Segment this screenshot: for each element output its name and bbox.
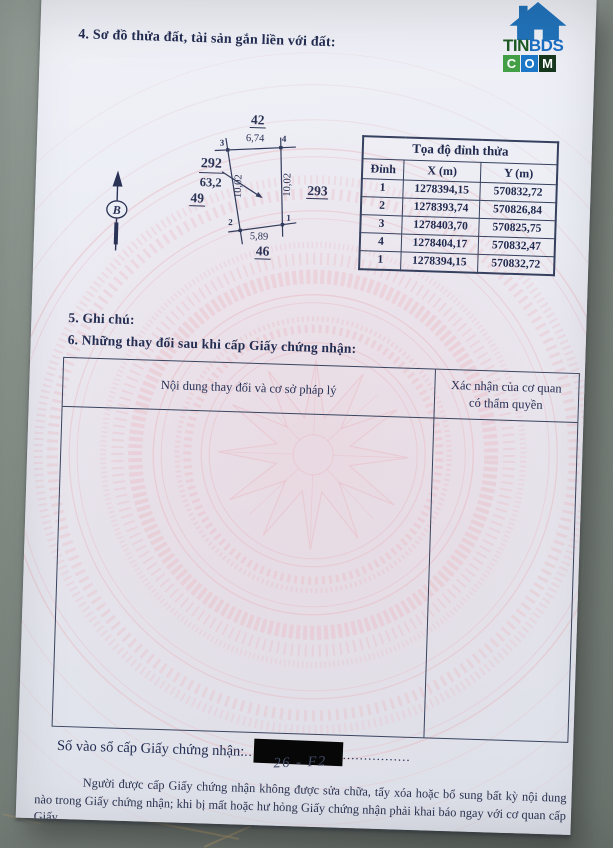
coord-cell: 570832,47 — [478, 236, 555, 256]
issue-number-label: Số vào sổ cấp Giấy chứng nhận: — [57, 738, 245, 760]
adjacent-plot-bottom: 46 — [255, 244, 271, 260]
coord-cell: 570826,84 — [479, 200, 556, 220]
changes-col2-header: Xác nhận của cơ quan có thẩm quyền — [433, 377, 578, 415]
north-arrow: B — [103, 170, 130, 257]
coord-cell: 1278393,74 — [402, 197, 480, 217]
plot-area: 63,2 — [200, 175, 222, 190]
coord-cell: 3 — [360, 214, 402, 233]
coord-col-header: Đỉnh — [362, 158, 404, 179]
adjacent-plot-top: 42 — [250, 113, 266, 129]
vertex-label-3: 3 — [220, 138, 225, 148]
site-name: TINBDS — [503, 38, 587, 53]
edge-length-top: 6,74 — [246, 133, 265, 145]
leader-dots: .. — [244, 744, 253, 759]
site-tld: C O M — [503, 55, 587, 72]
plot-number: 292 — [199, 157, 224, 173]
coord-cell: 1 — [361, 178, 403, 197]
tinbds-watermark: TINBDS C O M — [503, 2, 587, 72]
section5-title: 5. Ghi chú: — [68, 310, 135, 328]
vertex-label-2: 2 — [228, 217, 233, 227]
house-icon — [509, 2, 567, 40]
floor-tile-grout-line — [204, 825, 252, 848]
coord-cell: 1278394,15 — [401, 251, 479, 272]
leader-dots: ................ — [343, 747, 411, 764]
changes-table-column-divider — [423, 370, 436, 738]
coord-cell: 2 — [361, 196, 403, 215]
north-symbol-label: B — [112, 203, 121, 217]
site-name-part2: BDS — [529, 36, 563, 55]
photo-of-land-certificate: 4. Sơ đồ thửa đất, tài sản gắn liền với … — [0, 0, 613, 848]
edge-length-left: 10,02 — [233, 174, 245, 198]
changes-table: Nội dung thay đổi và cơ sở pháp lý Xác n… — [52, 357, 580, 743]
vertex-coordinates-table: Tọa độ đỉnh thửa Đỉnh X (m) Y (m) 1 1278… — [358, 135, 559, 276]
coord-col-header: Y (m) — [480, 162, 557, 184]
coord-col-header: X (m) — [403, 159, 481, 181]
tld-letter: O — [521, 55, 538, 72]
certificate-page: 4. Sơ đồ thửa đất, tài sản gắn liền với … — [16, 0, 597, 835]
tld-letter: M — [539, 55, 556, 72]
edge-length-right: 10,02 — [282, 173, 294, 197]
coord-cell: 1278403,70 — [402, 215, 480, 235]
adjacent-plot-right: 293 — [306, 184, 329, 200]
coord-cell: 1 — [359, 250, 401, 270]
coord-cell: 570832,72 — [480, 182, 557, 202]
changes-col1-header: Nội dung thay đổi và cơ sở pháp lý — [63, 374, 434, 401]
tld-letter: C — [503, 55, 520, 72]
vertex-label-1: 1 — [286, 213, 291, 223]
adjacent-plot-left: 49 — [189, 191, 205, 207]
coord-cell: 1278394,15 — [403, 179, 481, 199]
coord-cell: 570832,72 — [478, 254, 555, 275]
coord-cell: 570825,75 — [479, 218, 556, 238]
vertex-label-4: 4 — [282, 134, 287, 144]
handwritten-annotation: 26 - F2 — [273, 753, 327, 772]
plot-number-and-area: 292 63,2 — [187, 154, 234, 192]
coord-cell: 4 — [360, 232, 402, 251]
coord-cell: 1278404,17 — [401, 233, 479, 253]
edge-length-bottom: 5,89 — [250, 231, 269, 243]
site-name-part1: TIN — [503, 36, 529, 55]
